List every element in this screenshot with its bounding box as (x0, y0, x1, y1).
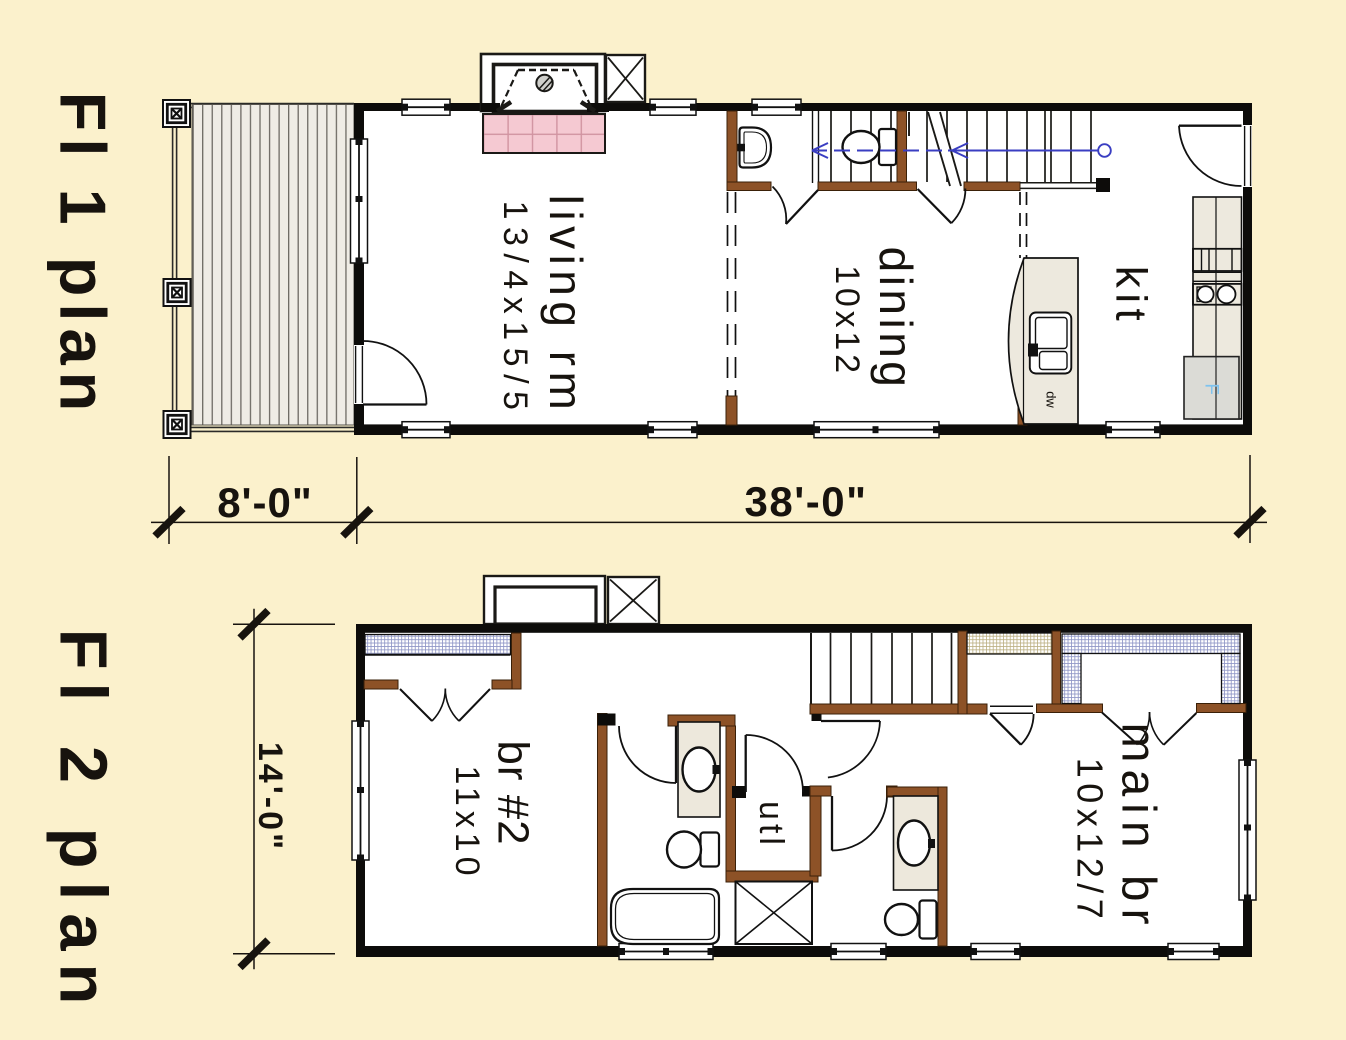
svg-text:utl: utl (752, 801, 790, 849)
svg-text:kit: kit (1107, 266, 1156, 327)
svg-text:10x12/7: 10x12/7 (1070, 758, 1111, 925)
svg-text:living rm: living rm (540, 195, 592, 416)
svg-text:8'-0": 8'-0" (217, 479, 313, 526)
svg-text:10x12: 10x12 (828, 265, 866, 377)
svg-text:br #2: br #2 (489, 740, 538, 845)
svg-text:main br: main br (1112, 722, 1165, 931)
svg-text:38'-0": 38'-0" (745, 478, 868, 525)
svg-text:14'-0": 14'-0" (251, 742, 289, 852)
svg-text:dining: dining (870, 247, 922, 391)
svg-text:13/4x15/5: 13/4x15/5 (496, 201, 534, 418)
svg-text:11x10: 11x10 (448, 765, 486, 880)
svg-text:F: F (1201, 383, 1222, 395)
svg-text:Fl 2 plan: Fl 2 plan (46, 629, 121, 1018)
svg-text:Fl 1 plan: Fl 1 plan (47, 92, 120, 419)
svg-text:dw: dw (1044, 391, 1059, 408)
